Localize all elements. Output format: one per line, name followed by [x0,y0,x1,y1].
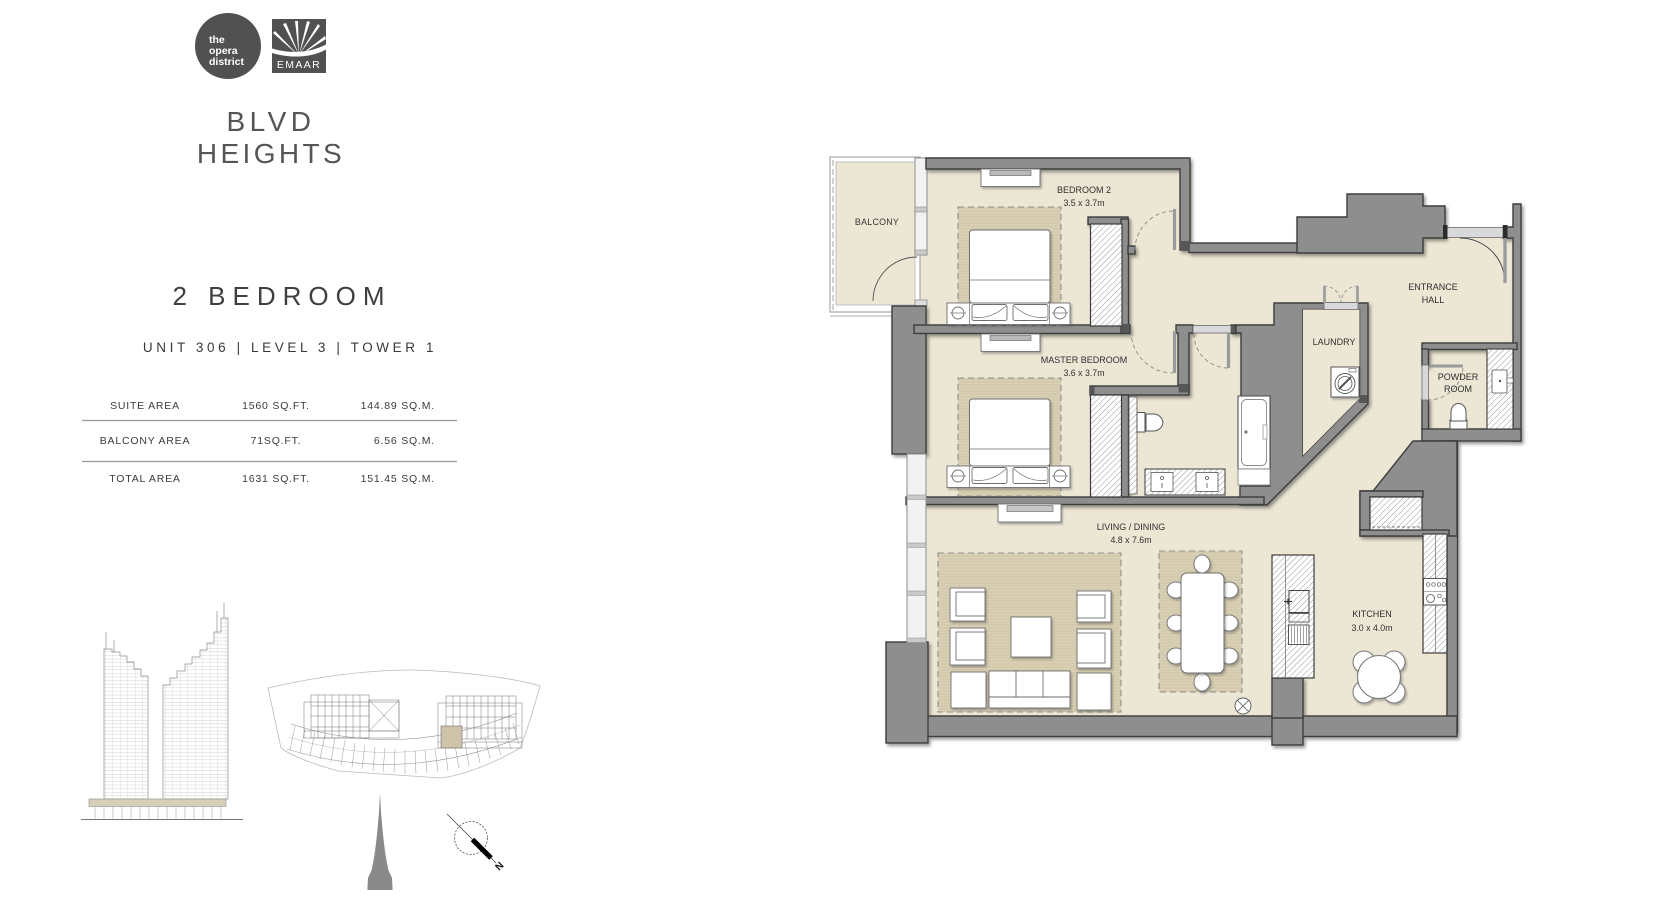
svg-text:4.8 x 7.6m: 4.8 x 7.6m [1110,535,1151,545]
svg-text:UNIT 306 | LEVEL 3 | TOWER 1: UNIT 306 | LEVEL 3 | TOWER 1 [143,340,437,355]
svg-text:POWDER: POWDER [1438,372,1479,382]
svg-text:1560 SQ.FT.: 1560 SQ.FT. [242,400,310,412]
svg-text:144.89 SQ.M.: 144.89 SQ.M. [361,400,435,412]
svg-text:6.56 SQ.M.: 6.56 SQ.M. [374,435,435,447]
svg-text:SUITE AREA: SUITE AREA [110,400,180,412]
svg-text:LAUNDRY: LAUNDRY [1313,337,1356,347]
svg-text:HEIGHTS: HEIGHTS [197,138,345,169]
svg-text:TOTAL AREA: TOTAL AREA [109,473,180,485]
svg-text:HALL: HALL [1422,295,1445,305]
svg-text:1631 SQ.FT.: 1631 SQ.FT. [242,473,310,485]
svg-text:71SQ.FT.: 71SQ.FT. [251,435,302,447]
svg-text:district: district [209,56,245,68]
svg-text:151.45 SQ.M.: 151.45 SQ.M. [361,473,435,485]
svg-text:3.6 x 3.7m: 3.6 x 3.7m [1063,368,1104,378]
svg-text:BALCONY AREA: BALCONY AREA [100,435,191,447]
svg-text:ROOM: ROOM [1444,384,1472,394]
svg-text:KITCHEN: KITCHEN [1352,609,1392,619]
svg-text:ENTRANCE: ENTRANCE [1408,282,1458,292]
svg-text:BEDROOM 2: BEDROOM 2 [1057,185,1111,195]
svg-text:LIVING / DINING: LIVING / DINING [1097,522,1166,532]
svg-text:3.5 x 3.7m: 3.5 x 3.7m [1063,198,1104,208]
svg-text:EMAAR: EMAAR [277,59,321,71]
svg-text:BALCONY: BALCONY [855,217,899,227]
svg-text:BLVD: BLVD [226,106,315,137]
svg-text:2 BEDROOM: 2 BEDROOM [172,281,391,311]
svg-text:3.0 x 4.0m: 3.0 x 4.0m [1351,623,1392,633]
svg-text:MASTER BEDROOM: MASTER BEDROOM [1041,355,1128,365]
